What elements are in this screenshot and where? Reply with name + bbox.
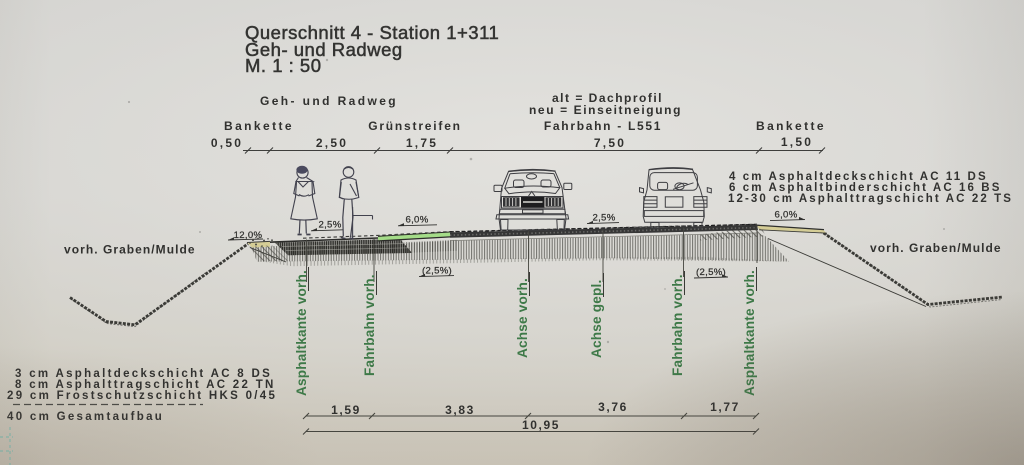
svg-text:Fahrbahn - L551: Fahrbahn - L551 xyxy=(544,119,662,133)
svg-text:3,83: 3,83 xyxy=(445,403,475,417)
svg-text:2,50: 2,50 xyxy=(316,136,348,150)
svg-text:12,0%: 12,0% xyxy=(234,230,263,241)
svg-text:Asphaltkante vorh.: Asphaltkante vorh. xyxy=(742,270,757,396)
svg-text:Bankette: Bankette xyxy=(756,119,826,133)
svg-text:1,75: 1,75 xyxy=(406,136,438,150)
svg-text:6,0%: 6,0% xyxy=(774,210,797,221)
svg-text:Fahrbahn vorh.: Fahrbahn vorh. xyxy=(670,274,685,376)
svg-text:vorh. Graben/Mulde: vorh. Graben/Mulde xyxy=(870,241,1002,255)
svg-text:12-30 cm Asphalttragschicht AC: 12-30 cm Asphalttragschicht AC 22 TS xyxy=(728,193,1013,205)
svg-text:2,5%: 2,5% xyxy=(318,220,341,231)
svg-text:neu = Einseitneigung: neu = Einseitneigung xyxy=(529,103,682,117)
svg-text:4 cm Asphaltdeckschicht AC 11: 4 cm Asphaltdeckschicht AC 11 DS xyxy=(729,171,988,183)
svg-text:alt = Dachprofil: alt = Dachprofil xyxy=(552,91,663,105)
svg-text:M. 1 : 50: M. 1 : 50 xyxy=(245,55,321,76)
svg-text:1,77: 1,77 xyxy=(710,400,740,414)
svg-text:(2,5%): (2,5%) xyxy=(696,267,726,278)
svg-text:Geh- und Radweg: Geh- und Radweg xyxy=(260,94,398,108)
svg-text:6,0%: 6,0% xyxy=(405,215,428,226)
svg-text:Grünstreifen: Grünstreifen xyxy=(368,119,462,133)
svg-text:6 cm Asphaltbinderschicht AC 1: 6 cm Asphaltbinderschicht AC 16 BS xyxy=(729,182,1002,194)
svg-text:Asphaltkante vorh.: Asphaltkante vorh. xyxy=(294,270,309,396)
svg-text:3 cm Asphaltdeckschicht AC 8 D: 3 cm Asphaltdeckschicht AC 8 DS xyxy=(15,368,272,380)
svg-text:29 cm Frostschutzschicht HKS 0: 29 cm Frostschutzschicht HKS 0/45 xyxy=(7,390,277,402)
svg-text:2,5%: 2,5% xyxy=(592,213,615,224)
svg-text:(2,5%): (2,5%) xyxy=(422,266,452,277)
svg-text:Querschnitt 4 - Station 1+31: Querschnitt 4 - Station 1+311 xyxy=(245,22,499,43)
svg-text:7,50: 7,50 xyxy=(594,136,626,150)
svg-text:1,50: 1,50 xyxy=(781,135,813,149)
svg-text:vorh. Graben/Mulde: vorh. Graben/Mulde xyxy=(64,243,196,257)
svg-text:3,76: 3,76 xyxy=(598,400,628,414)
svg-text:Achse gepl.: Achse gepl. xyxy=(589,280,604,359)
svg-text:40 cm Gesamtaufbau: 40 cm Gesamtaufbau xyxy=(7,411,164,423)
svg-text:8 cm Asphalttragschicht AC 22: 8 cm Asphalttragschicht AC 22 TN xyxy=(15,379,276,391)
svg-text:0,50: 0,50 xyxy=(211,136,243,150)
svg-text:1,59: 1,59 xyxy=(331,403,361,417)
svg-text:10,95: 10,95 xyxy=(522,418,560,432)
svg-text:Geh- und Radweg: Geh- und Radweg xyxy=(245,39,403,60)
svg-text:Fahrbahn vorh.: Fahrbahn vorh. xyxy=(362,274,377,376)
svg-text:Bankette: Bankette xyxy=(224,119,294,133)
svg-text:Achse vorh.: Achse vorh. xyxy=(515,278,530,358)
